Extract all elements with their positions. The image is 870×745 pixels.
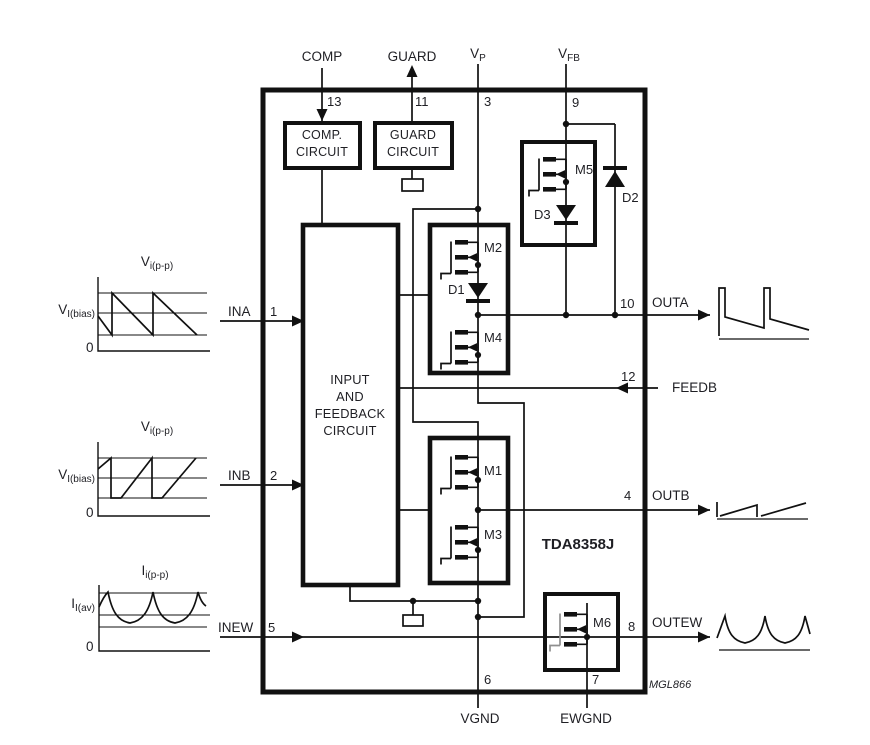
label-m4: M4 xyxy=(484,331,502,345)
label-d2: D2 xyxy=(622,191,639,205)
part-number: TDA8358J xyxy=(542,537,615,554)
label-m2: M2 xyxy=(484,241,502,255)
outb-arrow xyxy=(698,505,710,516)
waveform-outb-plot xyxy=(717,502,808,519)
guard-circuit-label: GUARDCIRCUIT xyxy=(387,127,439,160)
diode-d1-symbol xyxy=(466,283,490,303)
diode-d2-symbol xyxy=(603,166,627,187)
pin-label-comp: COMP xyxy=(302,50,343,65)
label-d3: D3 xyxy=(534,208,551,222)
pin-number-11: 11 xyxy=(415,95,429,109)
label-d1: D1 xyxy=(448,283,465,297)
pin-label-inew: INEW xyxy=(218,621,253,636)
label-m1: M1 xyxy=(484,464,502,478)
waveform-ina-zero: 0 xyxy=(86,341,94,356)
waveform-ina-title: Vi(p-p) xyxy=(141,255,173,272)
inew-arrow xyxy=(292,632,304,643)
pin-label-feedb: FEEDB xyxy=(672,381,717,396)
label-m6: M6 xyxy=(593,616,611,630)
drawing-code: MGL866 xyxy=(649,679,691,691)
comp-circuit-label: COMP.CIRCUIT xyxy=(296,127,348,160)
m6-box xyxy=(545,594,618,670)
pin-label-inb: INB xyxy=(228,469,251,484)
pin-number-4: 4 xyxy=(624,489,631,503)
wire-gate-drives xyxy=(398,295,430,510)
block-diagram: COMP GUARD VP VFB 13 11 3 9 INA 1 INB 2 … xyxy=(0,0,870,745)
waveform-inb-bias-label: VI(bias) xyxy=(58,468,95,485)
label-m5: M5 xyxy=(575,163,593,177)
wires xyxy=(220,64,710,708)
pin-label-outb: OUTB xyxy=(652,489,690,504)
waveform-outew-plot xyxy=(717,616,810,650)
pin-label-ewgnd: EWGND xyxy=(560,712,612,727)
waveform-inew-title: Ii(p-p) xyxy=(141,564,168,581)
pin-label-vp: VP xyxy=(470,47,486,64)
mosfet-m6-symbol xyxy=(550,612,590,652)
pin-label-vfb: VFB xyxy=(558,47,580,64)
label-m3: M3 xyxy=(484,528,502,542)
m5-box xyxy=(522,142,595,245)
mosfet-m5-symbol xyxy=(529,157,569,197)
block-ground-symbol xyxy=(403,615,423,626)
pin-number-2: 2 xyxy=(270,469,277,483)
pin-number-7: 7 xyxy=(592,673,599,687)
wire-vp-branch xyxy=(413,209,478,438)
mosfet-m2-symbol xyxy=(441,240,481,280)
guard-arrow xyxy=(407,65,418,77)
pin-number-9: 9 xyxy=(572,96,579,110)
waveform-ina-plot xyxy=(98,277,210,351)
waveform-outa-plot xyxy=(719,288,809,339)
pin-label-outew: OUTEW xyxy=(652,616,702,631)
wire-d2-branch xyxy=(566,124,615,315)
pin-label-ina: INA xyxy=(228,305,251,320)
pin-label-outa: OUTA xyxy=(652,296,689,311)
mosfet-m1-symbol xyxy=(441,455,481,495)
pin-number-5: 5 xyxy=(268,621,275,635)
mosfet-m4-symbol xyxy=(441,330,481,370)
pin-number-3: 3 xyxy=(484,95,491,109)
pin-number-12: 12 xyxy=(621,370,635,384)
guard-ground-symbol xyxy=(402,179,423,191)
mosfet-m3-symbol xyxy=(441,525,481,565)
waveform-inew-av-label: II(av) xyxy=(71,597,95,614)
diagram-canvas xyxy=(0,0,870,745)
pin-label-vgnd: VGND xyxy=(460,712,499,727)
waveform-inew-plot xyxy=(99,585,210,651)
waveform-ina-bias-label: VI(bias) xyxy=(58,303,95,320)
waveform-inew-zero: 0 xyxy=(86,640,94,655)
input-feedback-label: INPUT AND FEEDBACK CIRCUIT xyxy=(315,371,386,439)
outa-arrow xyxy=(698,310,710,321)
waveform-inb-title: Vi(p-p) xyxy=(141,420,173,437)
pin-number-10: 10 xyxy=(620,297,634,311)
diode-d3-symbol xyxy=(554,205,578,225)
pin-number-1: 1 xyxy=(270,305,277,319)
comp-arrow xyxy=(317,109,328,121)
pin-number-8: 8 xyxy=(628,620,635,634)
waveform-inb-zero: 0 xyxy=(86,506,94,521)
waveform-inb-plot xyxy=(98,442,210,516)
pin-label-guard: GUARD xyxy=(388,50,437,65)
pin-number-13: 13 xyxy=(327,95,341,109)
pin-number-6: 6 xyxy=(484,673,491,687)
outew-arrow xyxy=(698,632,710,643)
